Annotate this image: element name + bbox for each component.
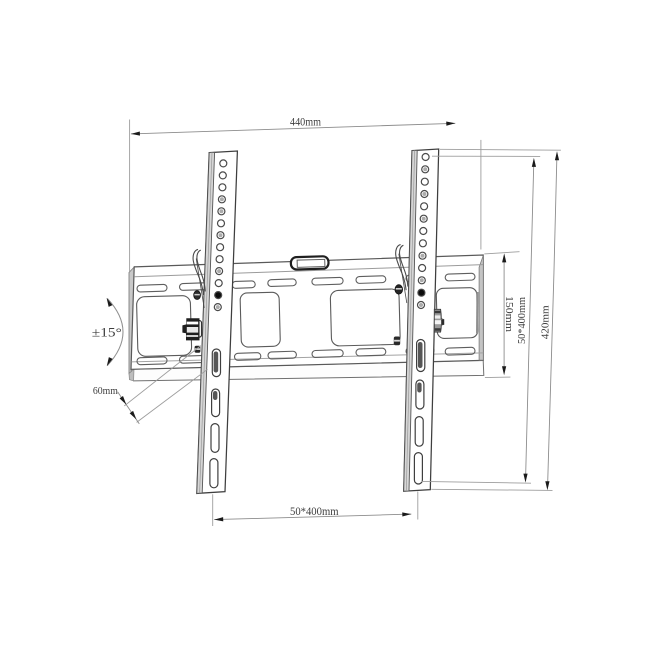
- svg-text:±15°: ±15°: [92, 325, 122, 340]
- svg-text:440mm: 440mm: [290, 115, 322, 129]
- svg-text:150mm: 150mm: [503, 296, 514, 332]
- svg-text:420mm: 420mm: [541, 305, 552, 339]
- svg-text:50*400mm: 50*400mm: [290, 506, 339, 518]
- svg-text:60mm: 60mm: [93, 385, 118, 397]
- svg-text:50*400mm: 50*400mm: [517, 297, 528, 344]
